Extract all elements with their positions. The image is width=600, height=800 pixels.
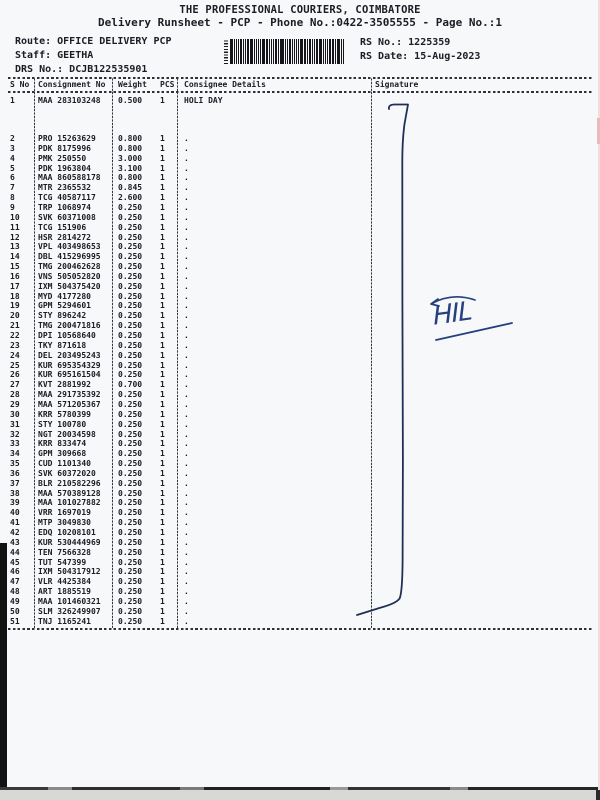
table-row: 18MYD 41772800.2501.: [8, 292, 594, 302]
cell-signature: [371, 567, 594, 577]
cell-sno: 18: [8, 292, 34, 302]
table-row: 24DEL 2034952430.2501.: [8, 351, 594, 361]
cell-signature: [371, 518, 594, 528]
cell-sno: 9: [8, 203, 34, 213]
cell-consignment: MAA 101027882: [34, 498, 112, 508]
cell-pcs: 1: [152, 597, 177, 607]
cell-signature: [371, 439, 594, 449]
table-row: 37BLR 2105822960.2501.: [8, 479, 594, 489]
cell-consignment: MAA 860588178: [34, 173, 112, 183]
cell-signature: [371, 351, 594, 361]
cell-weight: 3.100: [112, 164, 152, 174]
cell-weight: 0.250: [112, 558, 152, 568]
table-row: 50SLM 3262499070.2501.: [8, 607, 594, 617]
cell-pcs: 1: [152, 272, 177, 282]
cell-weight: 0.250: [112, 233, 152, 243]
cell-pcs: 1: [152, 351, 177, 361]
page-subtitle: Delivery Runsheet - PCP - Phone No.:0422…: [0, 16, 600, 29]
cell-sno: 3: [8, 144, 34, 154]
cell-weight: 0.250: [112, 390, 152, 400]
cell-pcs: 1: [152, 242, 177, 252]
cell-pcs: 1: [152, 567, 177, 577]
cell-pcs: 1: [152, 193, 177, 203]
cell-weight: 0.250: [112, 538, 152, 548]
table-row: 36SVK 603720200.2501.: [8, 469, 594, 479]
cell-consignee: .: [177, 508, 371, 518]
cell-weight: 0.250: [112, 449, 152, 459]
barcode-side-label: [224, 39, 228, 64]
cell-consignee: HOLI DAY: [177, 96, 371, 106]
table-row: 41MTP 30498300.2501.: [8, 518, 594, 528]
table-row: 34GPM 3096680.2501.: [8, 449, 594, 459]
table-row: 39MAA 1010278820.2501.: [8, 498, 594, 508]
cell-sno: 41: [8, 518, 34, 528]
cell-pcs: 1: [152, 449, 177, 459]
rs-date: RS Date: 15-Aug-2023: [360, 51, 480, 62]
cell-sno: 29: [8, 400, 34, 410]
cell-consignment: TKY 871618: [34, 341, 112, 351]
cell-consignment: SLM 326249907: [34, 607, 112, 617]
cell-consignment: PDK 8175996: [34, 144, 112, 154]
table-row: 48ART 18855190.2501.: [8, 587, 594, 597]
cell-sno: 45: [8, 558, 34, 568]
table-row: 17IXM 5043754200.2501.: [8, 282, 594, 292]
cell-pcs: 1: [152, 96, 177, 106]
table-row: 13VPL 4034986530.2501.: [8, 242, 594, 252]
cell-signature: [371, 508, 594, 518]
cell-consignee: .: [177, 430, 371, 440]
table-row: 25KUR 6953543290.2501.: [8, 361, 594, 371]
cell-consignment: MAA 570389128: [34, 489, 112, 499]
cell-consignee: .: [177, 420, 371, 430]
cell-consignee: .: [177, 607, 371, 617]
cell-consignment: DEL 203495243: [34, 351, 112, 361]
cell-weight: 0.500: [112, 96, 152, 106]
cell-signature: [371, 213, 594, 223]
cell-signature: [371, 223, 594, 233]
cell-sno: 28: [8, 390, 34, 400]
cell-consignee: .: [177, 528, 371, 538]
cell-consignment: GPM 309668: [34, 449, 112, 459]
cell-consignment: ART 1885519: [34, 587, 112, 597]
cell-consignment: KUR 695354329: [34, 361, 112, 371]
cell-consignment: MAA 571205367: [34, 400, 112, 410]
cell-signature: [371, 311, 594, 321]
staff-text: Staff: GEETHA: [15, 50, 93, 61]
cell-consignment: TCG 40587117: [34, 193, 112, 203]
route-text: Route: OFFICE DELIVERY PCP: [15, 36, 172, 47]
cell-signature: [371, 528, 594, 538]
table-rule-top: [8, 77, 593, 79]
table-row: 6MAA 8605881780.8001.: [8, 173, 594, 183]
cell-sno: 33: [8, 439, 34, 449]
cell-consignee: .: [177, 203, 371, 213]
cell-sno: 7: [8, 183, 34, 193]
table-rule-bottom: [8, 628, 593, 630]
cell-consignee: .: [177, 331, 371, 341]
cell-consignee: .: [177, 449, 371, 459]
table-row: 7MTR 23655320.8451.: [8, 183, 594, 193]
cell-consignee: .: [177, 144, 371, 154]
cell-weight: 0.250: [112, 430, 152, 440]
cell-consignee: .: [177, 548, 371, 558]
cell-signature: [371, 301, 594, 311]
cell-pcs: 1: [152, 311, 177, 321]
cell-consignee: .: [177, 193, 371, 203]
cell-pcs: 1: [152, 469, 177, 479]
cell-signature: [371, 193, 594, 203]
table-row: 29MAA 5712053670.2501.: [8, 400, 594, 410]
cell-pcs: 1: [152, 538, 177, 548]
cell-pcs: 1: [152, 331, 177, 341]
cell-pcs: 1: [152, 173, 177, 183]
cell-consignee: .: [177, 173, 371, 183]
cell-weight: 0.250: [112, 597, 152, 607]
cell-weight: 0.700: [112, 380, 152, 390]
cell-pcs: 1: [152, 361, 177, 371]
cell-signature: [371, 183, 594, 193]
cell-consignee: .: [177, 301, 371, 311]
cell-sno: 12: [8, 233, 34, 243]
cell-weight: 2.600: [112, 193, 152, 203]
cell-pcs: 1: [152, 577, 177, 587]
table-row: 42EDQ 102081010.2501.: [8, 528, 594, 538]
cell-pcs: 1: [152, 420, 177, 430]
cell-signature: [371, 577, 594, 587]
cell-consignment: CUD 1101340: [34, 459, 112, 469]
table-row: 44TEN 75663280.2501.: [8, 548, 594, 558]
cell-weight: 0.250: [112, 577, 152, 587]
cell-signature: [371, 548, 594, 558]
cell-consignee: .: [177, 311, 371, 321]
scan-artifact-left-edge: [0, 543, 7, 789]
cell-weight: 0.250: [112, 489, 152, 499]
cell-signature: [371, 479, 594, 489]
table-row: 12HSR 28142720.2501.: [8, 233, 594, 243]
cell-consignee: .: [177, 361, 371, 371]
cell-weight: 3.000: [112, 154, 152, 164]
cell-consignee: .: [177, 489, 371, 499]
cell-signature: [371, 617, 594, 627]
cell-sno: 13: [8, 242, 34, 252]
cell-weight: 0.845: [112, 183, 152, 193]
cell-consignment: KVT 2881992: [34, 380, 112, 390]
cell-consignment: VNS 505052820: [34, 272, 112, 282]
cell-sno: 24: [8, 351, 34, 361]
scan-corner-mark: [596, 790, 600, 800]
table-row: 28MAA 2917353920.2501.: [8, 390, 594, 400]
cell-pcs: 1: [152, 459, 177, 469]
table-row: 45TUT 5473990.2501.: [8, 558, 594, 568]
cell-weight: 0.250: [112, 331, 152, 341]
cell-weight: 0.250: [112, 528, 152, 538]
cell-pcs: 1: [152, 479, 177, 489]
cell-consignee: .: [177, 242, 371, 252]
table-body: 1MAA 2831032480.5001HOLI DAY2PRO 1526362…: [8, 96, 594, 628]
table-row: 43KUR 5304449690.2501.: [8, 538, 594, 548]
cell-consignee: .: [177, 370, 371, 380]
cell-consignee: .: [177, 617, 371, 627]
cell-consignment: MAA 283103248: [34, 96, 112, 106]
cell-sno: 23: [8, 341, 34, 351]
cell-signature: [371, 449, 594, 459]
cell-sno: 35: [8, 459, 34, 469]
table-row: 9TRP 10689740.2501.: [8, 203, 594, 213]
cell-consignment: TRP 1068974: [34, 203, 112, 213]
cell-sno: 40: [8, 508, 34, 518]
cell-pcs: 1: [152, 134, 177, 144]
cell-consignment: SVK 60372020: [34, 469, 112, 479]
cell-signature: [371, 597, 594, 607]
cell-weight: 0.250: [112, 498, 152, 508]
cell-weight: 0.800: [112, 173, 152, 183]
cell-consignment: PDK 1963804: [34, 164, 112, 174]
cell-pcs: 1: [152, 213, 177, 223]
cell-sno: 32: [8, 430, 34, 440]
cell-consignment: MAA 291735392: [34, 390, 112, 400]
cell-weight: 0.250: [112, 587, 152, 597]
cell-weight: 0.250: [112, 341, 152, 351]
table-row: 32NGT 200345980.2501.: [8, 430, 594, 440]
cell-consignment: DBL 415296995: [34, 252, 112, 262]
cell-consignee: .: [177, 577, 371, 587]
cell-consignee: .: [177, 292, 371, 302]
cell-signature: [371, 233, 594, 243]
cell-consignment: PMK 250550: [34, 154, 112, 164]
cell-sno: 36: [8, 469, 34, 479]
cell-signature: [371, 203, 594, 213]
cell-consignee: .: [177, 351, 371, 361]
cell-consignee: .: [177, 183, 371, 193]
table-row: 38MAA 5703891280.2501.: [8, 489, 594, 499]
cell-sno: 42: [8, 528, 34, 538]
cell-consignment: VRR 1697019: [34, 508, 112, 518]
cell-consignment: DPI 10568640: [34, 331, 112, 341]
cell-sno: 1: [8, 96, 34, 106]
table-row: 2PRO 152636290.8001.: [8, 134, 594, 144]
table-row: 22DPI 105686400.2501.: [8, 331, 594, 341]
cell-consignee: .: [177, 134, 371, 144]
cell-pcs: 1: [152, 164, 177, 174]
table-row: 5PDK 19638043.1001.: [8, 164, 594, 174]
cell-consignment: EDQ 10208101: [34, 528, 112, 538]
cell-pcs: 1: [152, 223, 177, 233]
cell-signature: [371, 173, 594, 183]
cell-signature: [371, 96, 594, 106]
cell-weight: 0.250: [112, 508, 152, 518]
cell-signature: [371, 154, 594, 164]
cell-consignee: .: [177, 567, 371, 577]
cell-sno: 15: [8, 262, 34, 272]
page-title: THE PROFESSIONAL COURIERS, COIMBATORE: [0, 4, 600, 16]
cell-sno: 49: [8, 597, 34, 607]
table-row: 27KVT 28819920.7001.: [8, 380, 594, 390]
cell-consignee: .: [177, 469, 371, 479]
table-row: 16VNS 5050528200.2501.: [8, 272, 594, 282]
cell-signature: [371, 252, 594, 262]
cell-weight: 0.250: [112, 301, 152, 311]
cell-consignment: MAA 101460321: [34, 597, 112, 607]
cell-consignment: TMG 200462628: [34, 262, 112, 272]
cell-sno: 39: [8, 498, 34, 508]
cell-sno: 10: [8, 213, 34, 223]
column-header-consignee: Consignee Details: [177, 80, 371, 90]
cell-consignee: .: [177, 223, 371, 233]
cell-pcs: 1: [152, 518, 177, 528]
table-row: 19GPM 52946010.2501.: [8, 301, 594, 311]
cell-consignee: .: [177, 154, 371, 164]
cell-sno: 44: [8, 548, 34, 558]
cell-pcs: 1: [152, 430, 177, 440]
cell-pcs: 1: [152, 380, 177, 390]
cell-consignment: TNJ 1165241: [34, 617, 112, 627]
cell-signature: [371, 331, 594, 341]
cell-pcs: 1: [152, 439, 177, 449]
cell-weight: 0.250: [112, 242, 152, 252]
cell-sno: 22: [8, 331, 34, 341]
table-row: 4PMK 2505503.0001.: [8, 154, 594, 164]
cell-consignee: .: [177, 272, 371, 282]
cell-consignment: VPL 403498653: [34, 242, 112, 252]
cell-consignee: .: [177, 518, 371, 528]
table-row: 30KRR 57803990.2501.: [8, 410, 594, 420]
cell-signature: [371, 341, 594, 351]
cell-weight: 0.250: [112, 272, 152, 282]
scan-background-bottom: [0, 790, 600, 800]
cell-sno: 20: [8, 311, 34, 321]
cell-pcs: 1: [152, 341, 177, 351]
cell-sno: 48: [8, 587, 34, 597]
cell-signature: [371, 430, 594, 440]
cell-weight: 0.250: [112, 469, 152, 479]
cell-consignment: IXM 504375420: [34, 282, 112, 292]
cell-consignee: .: [177, 479, 371, 489]
cell-consignment: HSR 2814272: [34, 233, 112, 243]
cell-pcs: 1: [152, 252, 177, 262]
cell-signature: [371, 607, 594, 617]
cell-consignee: .: [177, 213, 371, 223]
cell-sno: 46: [8, 567, 34, 577]
cell-sno: 30: [8, 410, 34, 420]
cell-consignment: TEN 7566328: [34, 548, 112, 558]
table-row: 49MAA 1014603210.2501.: [8, 597, 594, 607]
cell-sno: 2: [8, 134, 34, 144]
table-row: 33KRR 8334740.2501.: [8, 439, 594, 449]
cell-consignee: .: [177, 321, 371, 331]
cell-pcs: 1: [152, 154, 177, 164]
table-row: 3PDK 81759960.8001.: [8, 144, 594, 154]
table-row: 10SVK 603710080.2501.: [8, 213, 594, 223]
cell-sno: 27: [8, 380, 34, 390]
barcode: [224, 39, 346, 64]
cell-signature: [371, 272, 594, 282]
barcode-bars: [230, 39, 344, 64]
cell-consignee: .: [177, 380, 371, 390]
cell-signature: [371, 262, 594, 272]
cell-weight: 0.250: [112, 479, 152, 489]
cell-weight: 0.250: [112, 607, 152, 617]
cell-consignee: .: [177, 439, 371, 449]
cell-sno: 19: [8, 301, 34, 311]
cell-consignment: IXM 504317912: [34, 567, 112, 577]
cell-consignment: STY 896242: [34, 311, 112, 321]
cell-consignee: .: [177, 558, 371, 568]
cell-weight: 0.250: [112, 617, 152, 627]
cell-consignment: KRR 5780399: [34, 410, 112, 420]
cell-consignee: .: [177, 597, 371, 607]
table-header: S No Consignment No Weight PCS Consignee…: [8, 80, 594, 90]
cell-weight: 0.250: [112, 567, 152, 577]
cell-pcs: 1: [152, 498, 177, 508]
cell-pcs: 1: [152, 390, 177, 400]
cell-weight: 0.250: [112, 311, 152, 321]
cell-consignment: TMG 200471816: [34, 321, 112, 331]
column-header-pcs: PCS: [152, 80, 177, 90]
table-rule-header: [8, 91, 593, 93]
cell-weight: 0.250: [112, 262, 152, 272]
cell-weight: 0.250: [112, 252, 152, 262]
cell-signature: [371, 242, 594, 252]
column-header-sno: S No: [8, 80, 34, 90]
cell-consignee: .: [177, 233, 371, 243]
cell-signature: [371, 469, 594, 479]
cell-consignment: TCG 151906: [34, 223, 112, 233]
cell-weight: 0.250: [112, 420, 152, 430]
column-header-consignment: Consignment No: [34, 80, 112, 90]
cell-consignment: MTP 3049830: [34, 518, 112, 528]
cell-weight: 0.250: [112, 459, 152, 469]
cell-consignee: .: [177, 538, 371, 548]
cell-consignment: KRR 833474: [34, 439, 112, 449]
cell-pcs: 1: [152, 410, 177, 420]
cell-weight: 0.800: [112, 134, 152, 144]
cell-consignee: .: [177, 459, 371, 469]
cell-pcs: 1: [152, 508, 177, 518]
cell-pcs: 1: [152, 203, 177, 213]
cell-signature: [371, 292, 594, 302]
cell-sno: 25: [8, 361, 34, 371]
cell-consignee: .: [177, 410, 371, 420]
cell-weight: 0.250: [112, 370, 152, 380]
cell-sno: 38: [8, 489, 34, 499]
cell-sno: 34: [8, 449, 34, 459]
cell-weight: 0.250: [112, 400, 152, 410]
cell-sno: 5: [8, 164, 34, 174]
table-row: 1MAA 2831032480.5001HOLI DAY: [8, 96, 594, 106]
table-row: 11TCG 1519060.2501.: [8, 223, 594, 233]
cell-weight: 0.250: [112, 321, 152, 331]
cell-signature: [371, 134, 594, 144]
cell-pcs: 1: [152, 321, 177, 331]
signature-annotation: HIL: [432, 296, 472, 331]
table-row: 26KUR 6951615040.2501.: [8, 370, 594, 380]
cell-weight: 0.250: [112, 292, 152, 302]
cell-signature: [371, 538, 594, 548]
cell-consignee: .: [177, 498, 371, 508]
table-row: 40VRR 16970190.2501.: [8, 508, 594, 518]
cell-pcs: 1: [152, 183, 177, 193]
cell-consignee: .: [177, 390, 371, 400]
cell-sno: 14: [8, 252, 34, 262]
cell-weight: 0.250: [112, 518, 152, 528]
cell-consignment: SVK 60371008: [34, 213, 112, 223]
cell-consignment: MYD 4177280: [34, 292, 112, 302]
cell-consignee: .: [177, 252, 371, 262]
cell-pcs: 1: [152, 292, 177, 302]
cell-consignee: .: [177, 400, 371, 410]
table-row: 14DBL 4152969950.2501.: [8, 252, 594, 262]
cell-consignment: MTR 2365532: [34, 183, 112, 193]
